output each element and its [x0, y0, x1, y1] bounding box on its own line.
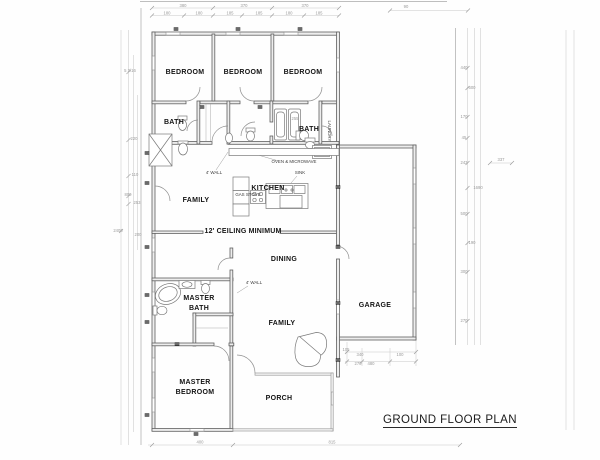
dim-label: 337	[498, 157, 506, 162]
walls	[152, 32, 416, 431]
shower-icon	[149, 134, 172, 166]
dim-label: 480	[368, 361, 376, 366]
room-label-bedroom-3: BEDROOM	[284, 69, 323, 76]
annotation-leaders	[216, 152, 297, 293]
dim-label: 243	[461, 160, 469, 165]
room-label-bedroom-2: BEDROOM	[224, 69, 263, 76]
room-label-bedroom-1: BEDROOM	[166, 69, 205, 76]
note-gas-stove: GAS STOVE	[235, 192, 260, 197]
piano-icon	[295, 333, 327, 367]
room-label-family-upper: FAMILY	[183, 197, 210, 204]
dim-label: 45	[462, 135, 467, 140]
dim-label: 110	[132, 172, 139, 177]
dim-label: 180	[286, 11, 294, 16]
dim-label: 180	[196, 11, 204, 16]
dim-label: 185	[316, 11, 324, 16]
dim-label: 170	[461, 114, 469, 119]
dim-label: 440	[461, 65, 469, 70]
dim-label: 255	[292, 116, 300, 121]
note-sink: SINK	[295, 170, 305, 175]
dim-label: 815	[329, 440, 337, 445]
dim-label: 380	[180, 3, 188, 8]
dim-label: 185	[256, 11, 264, 16]
dim-label: 370	[241, 3, 249, 8]
note-4ft-wall-kitchen: 4' WALL	[206, 170, 223, 175]
room-label-master-bedroom-line2: BEDROOM	[176, 389, 215, 396]
dim-label: 270	[461, 318, 469, 323]
dim-label: 105	[343, 347, 351, 352]
page-title: GROUND FLOOR PLAN	[383, 414, 517, 428]
note-oven-microwave: OVEN & MICROWAVE	[272, 159, 317, 164]
dim-label: 600	[469, 85, 477, 90]
dim-label: 800	[125, 192, 133, 197]
dim-label: 270	[355, 361, 363, 366]
room-label-master-bath-line1: MASTER	[183, 295, 214, 302]
room-label-porch: PORCH	[266, 395, 293, 402]
dim-label: 200	[135, 232, 143, 237]
note-4ft-wall-dining: 4' WALL	[246, 280, 263, 285]
dim-label: 300	[461, 269, 469, 274]
room-label-master-bath-line2: BATH	[189, 305, 209, 312]
dim-label: 100	[397, 352, 405, 357]
dim-label: 90	[404, 4, 409, 9]
room-label-master-bedroom-line1: MASTER	[179, 379, 210, 386]
dim-label: 2400	[113, 228, 123, 233]
dim-label: 1690	[473, 185, 483, 190]
floor-plan-canvas: BEDROOMBEDROOMBEDROOMBATHBATHKITCHENFAMI…	[0, 0, 600, 460]
porch-walls	[233, 373, 333, 431]
dim-label: 185	[227, 11, 235, 16]
toilet-icon	[153, 306, 167, 315]
dim-label: 5 3/16	[124, 68, 136, 73]
note-laundry: LAUNDRY	[327, 121, 332, 142]
room-label-family-lower: FAMILY	[269, 320, 296, 327]
ceiling-note: 12' CEILING MINIMUM	[204, 228, 281, 235]
kitchen-counter	[229, 149, 339, 156]
room-label-kitchen: KITCHEN	[251, 185, 284, 192]
dim-label: 180	[164, 11, 172, 16]
dim-label: 190	[469, 240, 477, 245]
sink-icon	[226, 133, 233, 143]
room-label-bath-1: BATH	[164, 119, 184, 126]
toilet-icon	[246, 128, 255, 141]
dim-label: 500	[461, 211, 469, 216]
toilet-icon	[201, 281, 210, 294]
dim-label: 340	[357, 352, 365, 357]
room-label-dining: DINING	[271, 256, 298, 263]
floorplan-drawing: BEDROOMBEDROOMBEDROOMBATHBATHKITCHENFAMI…	[0, 0, 600, 460]
bathtub-icon	[275, 109, 287, 140]
sink-icon	[179, 281, 195, 289]
dim-label: 400	[197, 440, 205, 445]
plan-labels: BEDROOMBEDROOMBEDROOMBATHBATHKITCHENFAMI…	[113, 3, 505, 445]
room-label-garage: GARAGE	[359, 302, 392, 309]
dim-label: 220	[131, 136, 139, 141]
sink-icon	[178, 141, 188, 155]
dim-label: 370	[302, 3, 310, 8]
dim-label: 253	[134, 200, 142, 205]
room-label-bath-2: BATH	[299, 126, 319, 133]
